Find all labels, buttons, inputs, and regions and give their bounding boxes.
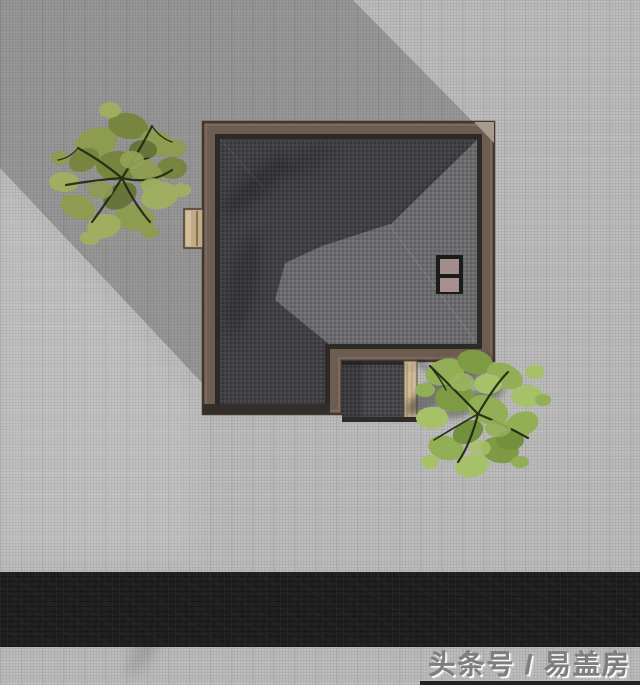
asphalt-road xyxy=(0,572,640,647)
skylight-chimney xyxy=(436,255,463,294)
porch-wing xyxy=(342,361,417,422)
skylight-panel-bottom xyxy=(440,278,459,292)
watermark-text: 头条号 / 易盖房 xyxy=(428,643,631,682)
tree-2 xyxy=(415,347,551,480)
site-plan-render: 头条号 / 易盖房 xyxy=(0,0,640,685)
eave-bottom-left xyxy=(203,404,330,414)
tree2-foliage xyxy=(415,347,551,480)
porch-bottom-edge xyxy=(342,417,417,422)
skylight-panel-top xyxy=(440,259,459,274)
left-bay-window xyxy=(184,209,203,248)
